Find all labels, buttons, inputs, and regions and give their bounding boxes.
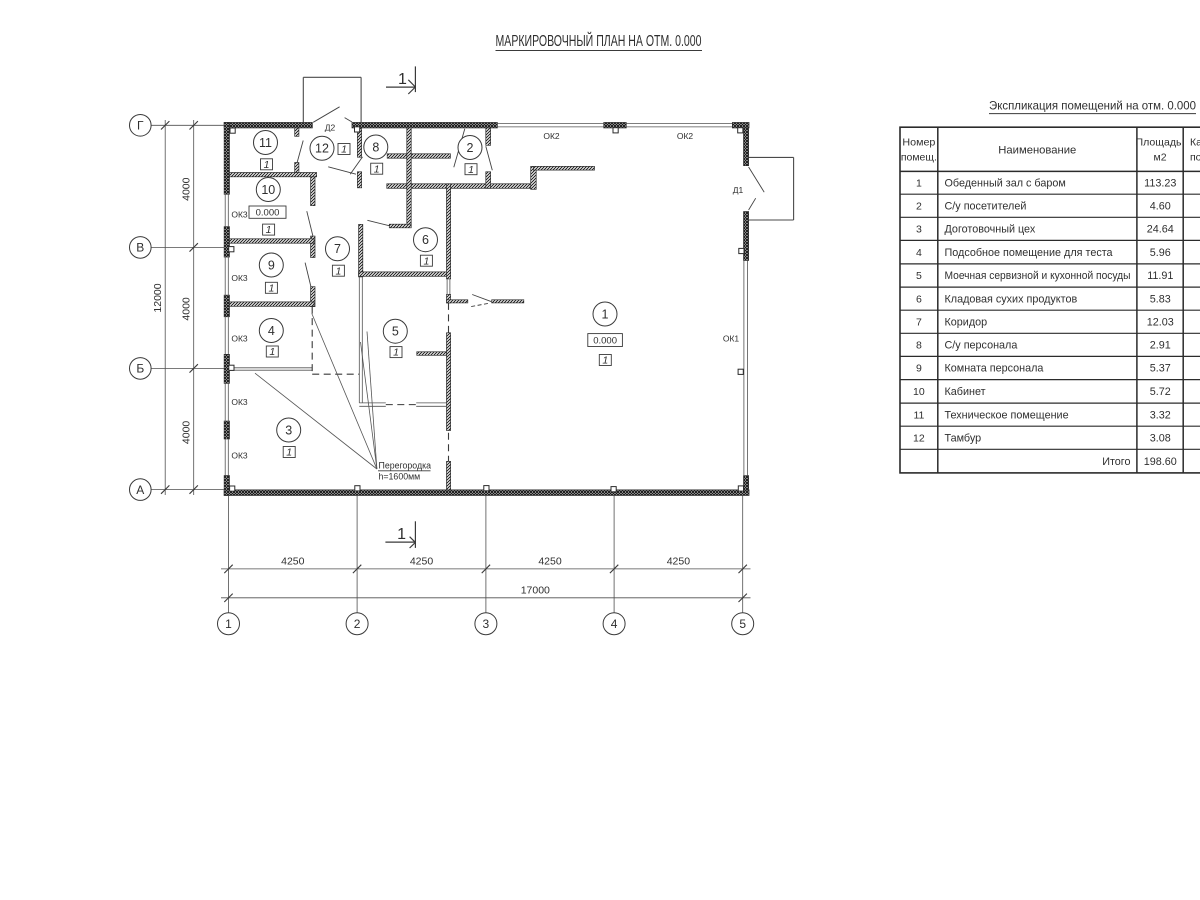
svg-text:4250: 4250: [281, 556, 305, 568]
svg-text:h=1600мм: h=1600мм: [379, 472, 421, 482]
svg-text:1: 1: [268, 282, 274, 294]
svg-text:ОК3: ОК3: [231, 273, 248, 283]
svg-text:ОК2: ОК2: [677, 131, 694, 141]
svg-text:1: 1: [398, 71, 407, 88]
svg-text:8: 8: [372, 140, 379, 154]
svg-text:5: 5: [392, 325, 399, 339]
svg-text:10: 10: [261, 183, 275, 197]
svg-text:Тамбур: Тамбур: [945, 432, 982, 444]
svg-text:1: 1: [341, 144, 347, 156]
svg-text:24.64: 24.64: [1147, 224, 1174, 236]
svg-text:Площадь,: Площадь,: [1136, 137, 1185, 149]
svg-text:Наименование: Наименование: [998, 144, 1076, 156]
svg-text:3: 3: [916, 224, 922, 236]
svg-text:7: 7: [334, 242, 341, 256]
svg-text:5: 5: [916, 270, 922, 282]
svg-text:12: 12: [913, 432, 925, 444]
svg-text:МАРКИРОВОЧНЫЙ ПЛАН НА ОТМ. 0.0: МАРКИРОВОЧНЫЙ ПЛАН НА ОТМ. 0.000: [496, 32, 702, 50]
svg-text:Д2: Д2: [325, 123, 336, 133]
svg-text:4000: 4000: [180, 177, 192, 201]
svg-text:3.32: 3.32: [1150, 409, 1171, 421]
svg-text:12.03: 12.03: [1147, 316, 1174, 328]
svg-text:2: 2: [354, 617, 361, 631]
svg-text:Подсобное помещение для теста: Подсобное помещение для теста: [945, 247, 1113, 259]
svg-text:Доготовочный цех: Доготовочный цех: [945, 224, 1036, 236]
svg-text:6: 6: [422, 233, 429, 247]
svg-text:1: 1: [468, 164, 474, 176]
svg-text:5.96: 5.96: [1150, 247, 1171, 259]
svg-text:4000: 4000: [180, 421, 192, 445]
svg-text:2.91: 2.91: [1150, 340, 1171, 352]
svg-text:Моечная сервизной и кухонной п: Моечная сервизной и кухонной посуды: [945, 270, 1131, 282]
svg-text:17000: 17000: [521, 585, 550, 597]
svg-text:4: 4: [916, 247, 922, 259]
svg-text:4250: 4250: [538, 556, 562, 568]
svg-text:по: по: [1190, 151, 1200, 163]
svg-text:6: 6: [916, 293, 922, 305]
svg-text:3.08: 3.08: [1150, 432, 1171, 444]
svg-text:ОК3: ОК3: [231, 451, 248, 461]
svg-text:Коридор: Коридор: [945, 316, 988, 328]
svg-text:Перегородка: Перегородка: [379, 461, 432, 471]
svg-text:м2: м2: [1153, 151, 1166, 163]
svg-text:0.000: 0.000: [593, 336, 617, 347]
svg-text:1: 1: [397, 526, 406, 543]
svg-text:помещ.: помещ.: [901, 151, 937, 163]
svg-text:7: 7: [916, 316, 922, 328]
svg-text:4.60: 4.60: [1150, 200, 1171, 212]
svg-text:Кладовая сухих продуктов: Кладовая сухих продуктов: [945, 293, 1078, 305]
svg-text:Итого: Итого: [1102, 456, 1130, 468]
svg-text:5.72: 5.72: [1150, 386, 1171, 398]
svg-text:ОК2: ОК2: [543, 131, 560, 141]
svg-text:Номер: Номер: [902, 137, 935, 149]
svg-text:В: В: [136, 241, 144, 255]
svg-text:11.91: 11.91: [1147, 270, 1173, 282]
svg-text:Техническое помещение: Техническое помещение: [945, 409, 1069, 421]
svg-text:ОК3: ОК3: [231, 334, 248, 344]
svg-text:4250: 4250: [667, 556, 691, 568]
svg-text:113.23: 113.23: [1144, 178, 1176, 190]
svg-text:2: 2: [467, 141, 474, 155]
svg-text:11: 11: [259, 136, 272, 150]
svg-text:1: 1: [602, 307, 609, 321]
svg-text:11: 11: [913, 409, 924, 421]
svg-text:1: 1: [269, 346, 275, 358]
svg-text:Д1: Д1: [733, 185, 744, 195]
svg-text:0.000: 0.000: [256, 208, 280, 219]
svg-text:1: 1: [264, 159, 270, 171]
svg-text:Г: Г: [137, 119, 144, 133]
svg-text:1: 1: [225, 617, 232, 631]
svg-text:Обеденный зал с баром: Обеденный зал с баром: [945, 178, 1066, 190]
svg-text:5.83: 5.83: [1150, 293, 1171, 305]
svg-text:4: 4: [611, 617, 618, 631]
svg-text:5.37: 5.37: [1150, 363, 1171, 375]
svg-text:1: 1: [393, 347, 399, 359]
svg-text:1: 1: [423, 255, 429, 267]
svg-text:10: 10: [913, 386, 925, 398]
svg-text:ОК3: ОК3: [231, 210, 248, 220]
svg-text:Комната персонала: Комната персонала: [945, 363, 1044, 375]
svg-text:4250: 4250: [410, 556, 434, 568]
svg-text:ОК3: ОК3: [231, 397, 248, 407]
svg-text:3: 3: [285, 423, 292, 437]
svg-text:4: 4: [268, 324, 275, 338]
svg-text:С/у персонала: С/у персонала: [945, 340, 1018, 352]
svg-text:198.60: 198.60: [1144, 456, 1177, 468]
svg-text:4000: 4000: [180, 297, 192, 321]
svg-text:1: 1: [916, 178, 922, 190]
svg-text:А: А: [136, 483, 144, 497]
svg-text:1: 1: [266, 224, 272, 236]
svg-text:2: 2: [916, 200, 922, 212]
svg-text:9: 9: [268, 258, 275, 272]
svg-text:5: 5: [739, 617, 746, 631]
svg-text:3: 3: [483, 617, 490, 631]
svg-text:8: 8: [916, 340, 922, 352]
svg-text:Кабинет: Кабинет: [945, 386, 986, 398]
svg-text:Экспликация помещений на отм.: Экспликация помещений на отм. 0.000: [989, 99, 1196, 113]
svg-text:1: 1: [602, 355, 608, 367]
svg-text:9: 9: [916, 363, 922, 375]
svg-text:1: 1: [335, 265, 341, 277]
svg-text:ОК1: ОК1: [723, 334, 740, 344]
svg-text:1: 1: [286, 447, 292, 459]
svg-text:Ка: Ка: [1190, 137, 1200, 149]
svg-text:С/у посетителей: С/у посетителей: [945, 200, 1027, 212]
svg-text:1: 1: [374, 163, 380, 175]
svg-text:12: 12: [315, 142, 329, 156]
svg-text:12000: 12000: [152, 283, 164, 312]
svg-text:Б: Б: [136, 362, 144, 376]
